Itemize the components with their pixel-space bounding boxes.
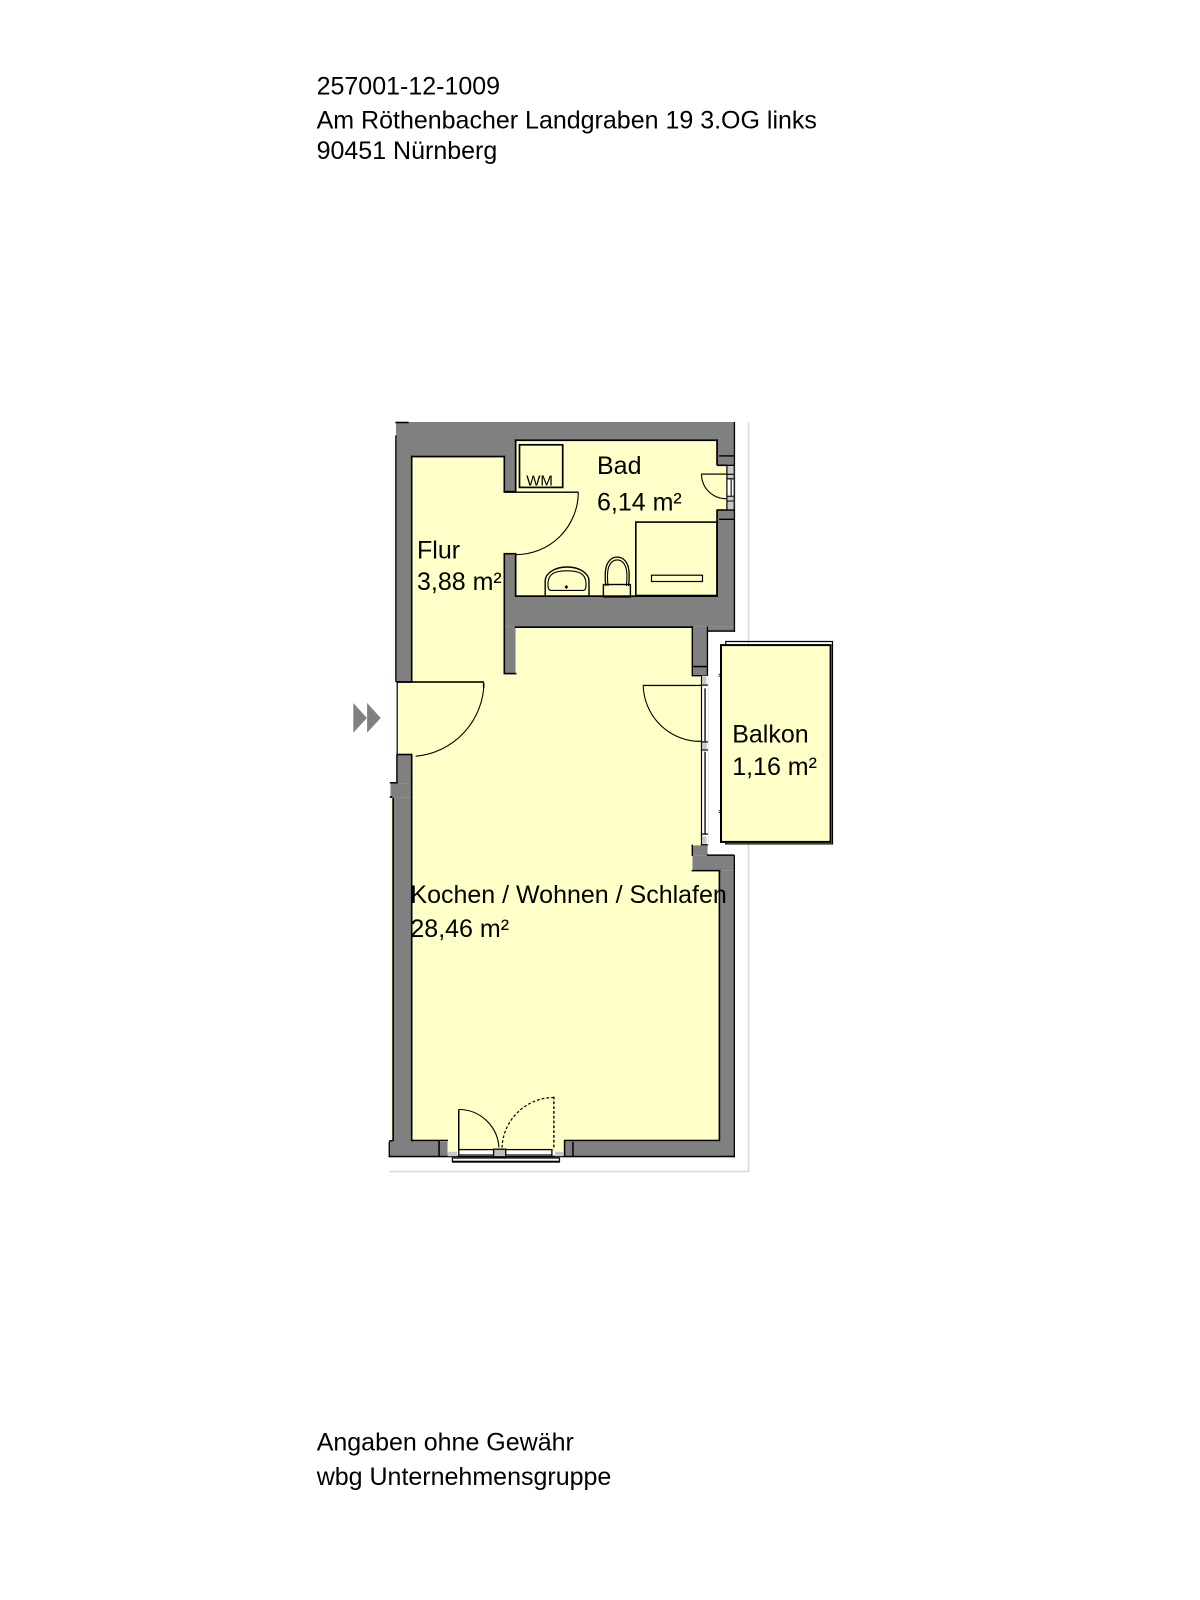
svg-text:1,16 m²: 1,16 m² <box>732 753 817 781</box>
svg-text:Angaben ohne Gewähr: Angaben ohne Gewähr <box>317 1429 574 1457</box>
svg-text:Balkon: Balkon <box>732 721 808 749</box>
svg-text:wbg Unternehmensgruppe: wbg Unternehmensgruppe <box>316 1463 612 1491</box>
svg-text:Bad: Bad <box>597 452 641 480</box>
svg-text:3,88 m²: 3,88 m² <box>417 568 502 596</box>
svg-text:28,46 m²: 28,46 m² <box>410 915 509 943</box>
svg-text:6,14 m²: 6,14 m² <box>597 488 682 516</box>
svg-text:Am Röthenbacher Landgraben 19: Am Röthenbacher Landgraben 19 3.OG links <box>317 107 817 135</box>
svg-text:90451 Nürnberg: 90451 Nürnberg <box>317 137 498 165</box>
svg-text:257001-12-1009: 257001-12-1009 <box>317 73 501 101</box>
svg-text:Kochen / Wohnen / Schlafen: Kochen / Wohnen / Schlafen <box>410 881 726 909</box>
svg-text:WM: WM <box>526 473 553 490</box>
svg-text:Flur: Flur <box>417 536 460 564</box>
